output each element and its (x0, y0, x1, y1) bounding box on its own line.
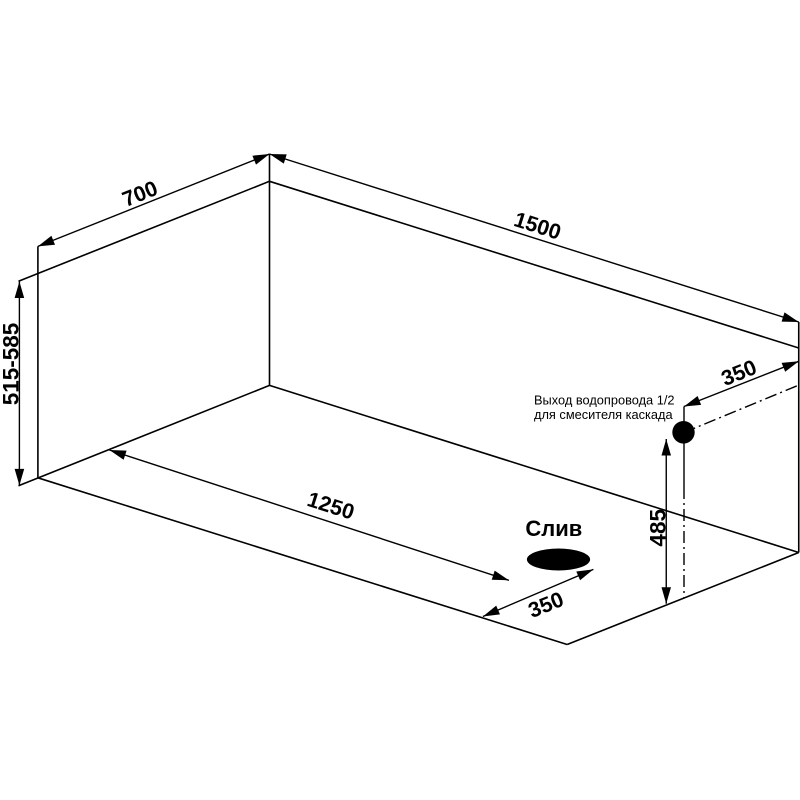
svg-text:Слив: Слив (525, 516, 582, 541)
svg-text:для смесителя каскада: для смесителя каскада (534, 407, 673, 422)
svg-text:700: 700 (119, 176, 161, 212)
svg-text:Выход водопровода 1/2: Выход водопровода 1/2 (534, 393, 675, 408)
svg-text:515-585: 515-585 (0, 323, 24, 406)
svg-text:1250: 1250 (304, 487, 357, 524)
svg-text:485: 485 (645, 509, 670, 547)
svg-text:350: 350 (525, 587, 567, 623)
svg-text:350: 350 (718, 355, 760, 391)
